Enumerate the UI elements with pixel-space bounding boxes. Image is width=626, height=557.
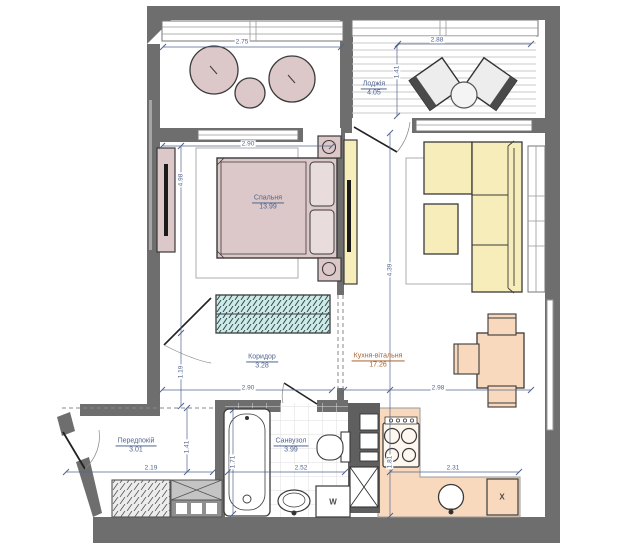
hallway-furniture xyxy=(112,480,222,517)
fridge-box-label: X xyxy=(499,492,504,501)
wall-bottom xyxy=(93,517,560,543)
dim-loggia-depth: 1.41 xyxy=(393,65,400,80)
dim-hall-width: 2.19 xyxy=(144,464,159,471)
room-area: 3.99 xyxy=(274,447,309,455)
bedroom-furniture xyxy=(157,136,341,333)
dim-balcony-width: 2.75 xyxy=(235,38,250,45)
kitchen-tap xyxy=(449,510,454,515)
dining-table xyxy=(477,333,524,388)
room-name: Кухня-вітальня xyxy=(352,352,405,361)
wall-bedroom-living-low xyxy=(337,388,344,402)
sofa-chaise xyxy=(424,142,472,194)
room-area: 17.26 xyxy=(352,362,405,370)
dim-kitchen-run: 2.31 xyxy=(446,464,461,471)
dim-bath-width: 2.52 xyxy=(294,464,309,471)
wall-hall-top xyxy=(80,404,160,416)
sofa-main xyxy=(472,142,522,292)
room-name: Лоджія xyxy=(361,80,387,89)
coffee-table xyxy=(424,204,458,254)
room-name: Передпокій xyxy=(116,437,157,446)
pillow-top xyxy=(310,162,334,206)
pouf-small-center xyxy=(235,78,265,108)
bedroom-door-swing xyxy=(164,345,211,363)
utility-shaft xyxy=(348,403,380,513)
balcony-poufs xyxy=(190,46,315,108)
bedroom-tv xyxy=(164,164,168,236)
room-area: 3.01 xyxy=(116,447,157,455)
wall-top-right xyxy=(345,6,560,20)
floor-plan-drawing xyxy=(0,0,626,557)
pillow-bottom xyxy=(310,210,334,254)
dim-bathtub-length: 1.71 xyxy=(229,455,236,470)
bedroom-door-leaf xyxy=(164,298,211,345)
dim-living-length: 4.39 xyxy=(386,263,393,278)
living-tv xyxy=(347,180,351,252)
nightstand-top xyxy=(318,136,341,158)
room-label-bedroom: Спальня 13.99 xyxy=(252,194,284,211)
dim-loggia-width: 2.88 xyxy=(430,36,445,43)
dim-corridor-depth: 1.19 xyxy=(177,365,184,380)
loggia-table xyxy=(451,82,477,108)
dim-corridor-width: 2.90 xyxy=(241,384,256,391)
room-label-corridor: Коридор 3.28 xyxy=(246,353,278,370)
bath-sink-tap xyxy=(292,511,297,516)
room-name: Коридор xyxy=(246,353,278,362)
dim-kitchen-depth: 1.81 xyxy=(386,455,393,470)
room-area: 4.05 xyxy=(361,90,387,98)
toilet-bowl xyxy=(317,435,343,460)
room-name: Спальня xyxy=(252,194,284,203)
room-name: Санвузол xyxy=(274,437,309,446)
room-label-bathroom: Санвузол 3.99 xyxy=(274,437,309,454)
wall-entry-diagonal-lower xyxy=(76,457,102,517)
kitchen-sink xyxy=(439,485,464,510)
wall-left-window xyxy=(149,100,152,250)
balcony-glazing xyxy=(162,21,343,41)
wall-right xyxy=(545,20,560,520)
dim-living-width: 2.98 xyxy=(431,384,446,391)
living-loggia-window xyxy=(416,120,532,131)
room-label-hallway: Передпокій 3.01 xyxy=(116,437,157,454)
wall-channel-right xyxy=(547,300,553,430)
dining-chair-bottom xyxy=(488,386,516,407)
room-area: 13.99 xyxy=(252,204,284,212)
nightstand-bottom xyxy=(318,258,341,281)
entry-door-leaf xyxy=(63,432,85,469)
dim-bedroom-length: 4.98 xyxy=(177,173,184,188)
floor-plan: Спальня 13.99 Коридор 3.28 Кухня-вітальн… xyxy=(0,0,626,557)
room-label-kitchen-living: Кухня-вітальня 17.26 xyxy=(352,352,405,369)
washing-machine-label: W xyxy=(329,497,337,506)
wall-entry-diagonal-upper xyxy=(57,412,75,436)
dining-chair-top xyxy=(488,314,516,335)
dim-bedroom-width: 2.90 xyxy=(241,140,256,147)
living-side-window xyxy=(528,146,545,292)
room-label-loggia: Лоджія 4.05 xyxy=(361,80,387,97)
dim-hall-depth: 1.41 xyxy=(183,440,190,455)
room-area: 3.28 xyxy=(246,363,278,371)
